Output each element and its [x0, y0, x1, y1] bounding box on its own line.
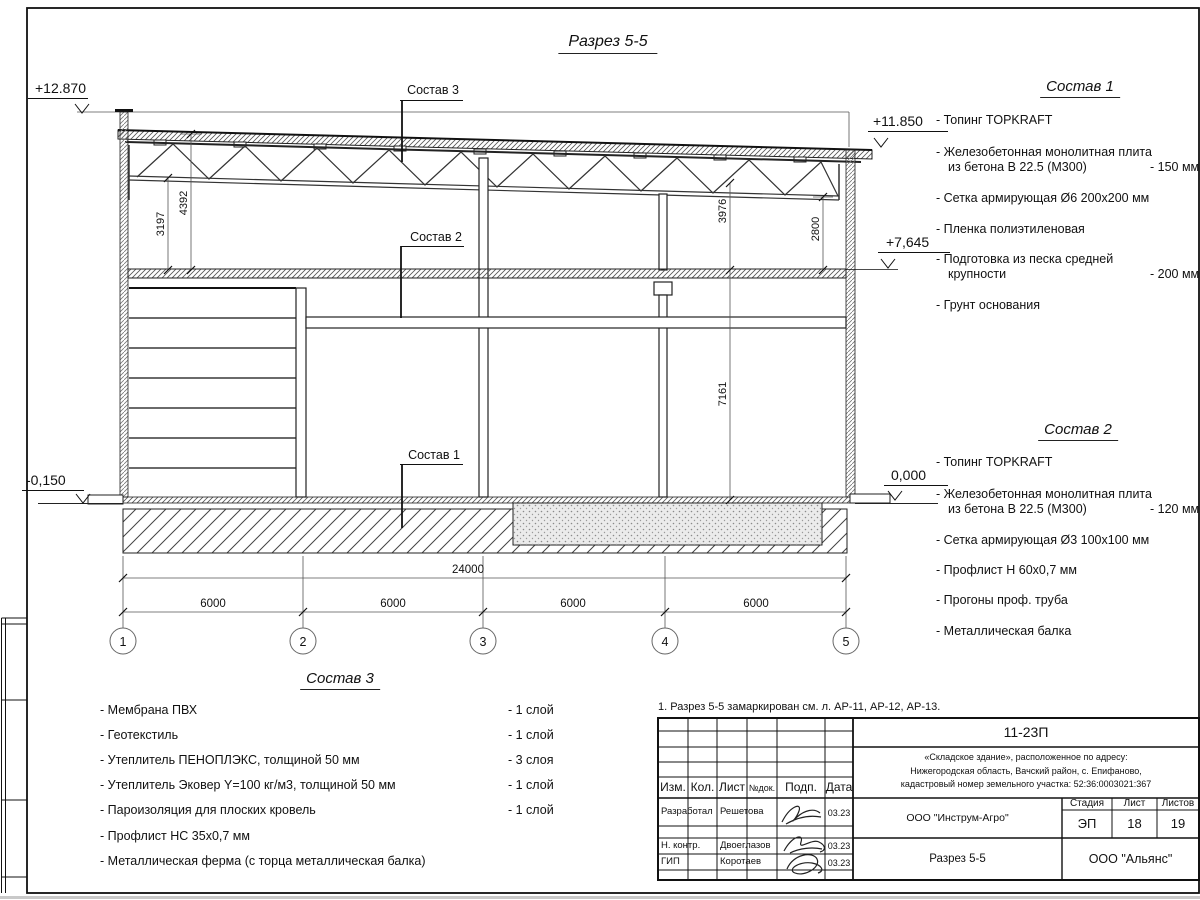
- stamp-col-list: Лист: [717, 780, 747, 794]
- sostav3-item: - Утеплитель Эковер Y=100 кг/м3, толщино…: [100, 778, 396, 793]
- sostav1-item: - Пленка полиэтиленовая: [936, 222, 1085, 237]
- stamp-sheet-value: 18: [1112, 810, 1157, 838]
- callout-sostav1: Состав 1: [408, 448, 460, 462]
- callouts: [400, 100, 464, 528]
- stamp-role-developer: Разработал: [661, 806, 713, 817]
- axis-2: 2: [300, 635, 307, 649]
- elevation-floor2: +7,645: [886, 234, 929, 250]
- axis-5: 5: [843, 635, 850, 649]
- floor-beam: [306, 317, 846, 328]
- stamp-sheet-label: Лист: [1112, 798, 1157, 810]
- sostav1-item: - Железобетонная монолитная плита из бет…: [936, 145, 1152, 175]
- stamp-stage-label: Стадия: [1062, 798, 1112, 810]
- dim-2800: 2800: [810, 217, 822, 241]
- dim-4392: 4392: [178, 191, 190, 215]
- sostav2-item: - Сетка армирующая Ø3 100x100 мм: [936, 533, 1149, 548]
- stamp-date-developer: 03.23: [825, 808, 853, 818]
- column-axis2: [296, 288, 306, 497]
- sostav3-item: - Профлист НС 35x0,7 мм: [100, 829, 250, 844]
- dim-7161: 7161: [717, 382, 729, 406]
- drawing-note: 1. Разрез 5-5 замаркирован см. л. АР-11,…: [658, 701, 940, 713]
- elevation-parapet: +12.870: [35, 80, 86, 96]
- dim-6000-4: 6000: [743, 598, 769, 610]
- sostav2-item: - Профлист Н 60x0,7 мм: [936, 563, 1077, 578]
- stamp-drawing-title: Разрез 5-5: [853, 838, 1062, 880]
- sostav1-heading: Состав 1: [1040, 78, 1120, 98]
- sostav3-item-value: - 1 слой: [508, 803, 554, 817]
- sostav1-item: - Подготовка из песка средней крупности: [936, 252, 1113, 282]
- axis-1: 1: [120, 635, 127, 649]
- sostav2-item: - Топинг TOPKRAFT: [936, 455, 1052, 470]
- stamp-project-address: «Складское здание», расположенное по адр…: [853, 751, 1199, 792]
- dim-3976: 3976: [717, 199, 729, 223]
- stamp-doc-number: 11-23П: [853, 724, 1199, 740]
- axis-4: 4: [662, 635, 669, 649]
- sostav1-item: - Грунт основания: [936, 298, 1040, 313]
- foundation: [123, 503, 847, 553]
- sostav2-item: - Железобетонная монолитная плита из бет…: [936, 487, 1152, 517]
- column-axis4-upper: [659, 194, 667, 270]
- elevation-roof-right: +11.850: [873, 113, 923, 129]
- sostav1-item: - Сетка армирующая Ø6 200x200 мм: [936, 191, 1149, 206]
- callout-sostav2: Состав 2: [410, 230, 462, 244]
- building-section: [38, 111, 938, 554]
- stamp-sheets-label: Листов: [1157, 798, 1199, 810]
- stamp-name-gip: Коротаев: [720, 856, 761, 867]
- sostav3-item-value: - 1 слой: [508, 728, 554, 742]
- stamp-date-ncontrol: 03.23: [825, 841, 853, 851]
- sostav3-item-value: - 3 слоя: [508, 753, 553, 767]
- sostav3-item: - Металлическая ферма (с торца металличе…: [100, 854, 426, 869]
- stamp-date-gip: 03.23: [825, 858, 853, 868]
- sostav3-item-value: - 1 слой: [508, 703, 554, 717]
- dim-24000: 24000: [452, 564, 484, 576]
- signature-reshetova: [782, 806, 821, 824]
- bottom-dimensions: [123, 556, 846, 628]
- stamp-sheets-value: 19: [1157, 810, 1199, 838]
- sostav3-item: - Геотекстиль: [100, 728, 178, 743]
- elevation-ground: -0,150: [26, 472, 66, 488]
- sostav2-item: - Металлическая балка: [936, 624, 1071, 639]
- dim-6000-3: 6000: [560, 598, 586, 610]
- stamp-col-podp: Подп.: [777, 780, 825, 794]
- sostav3-heading: Состав 3: [300, 670, 380, 690]
- gate-panel: [129, 288, 296, 468]
- stamp-col-kol: Кол.: [688, 780, 717, 794]
- sostav1-item: - Топинг TOPKRAFT: [936, 113, 1052, 128]
- stamp-role-ncontrol: Н. контр.: [661, 840, 700, 851]
- sostav2-item: - Прогоны проф. труба: [936, 593, 1068, 608]
- column-axis4-capital: [654, 282, 672, 295]
- dim-6000-1: 6000: [200, 598, 226, 610]
- dim-6000-2: 6000: [380, 598, 406, 610]
- right-wall: [846, 150, 855, 497]
- signatures: [782, 806, 824, 874]
- axis-3: 3: [480, 635, 487, 649]
- sostav1-item-value: - 150 мм: [1150, 160, 1199, 174]
- stamp-col-izm: Изм.: [658, 780, 688, 794]
- stamp-customer: ООО "Альянс": [1062, 838, 1199, 880]
- sostav3-item: - Утеплитель ПЕНОПЛЭКС, толщиной 50 мм: [100, 753, 360, 768]
- sostav1-item-value: - 200 мм: [1150, 267, 1199, 281]
- drawing-sheet: Состав 3 Состав 2 Состав 1 +12.870 +11.8…: [0, 0, 1200, 900]
- mezzanine-slab: [128, 269, 846, 278]
- signature-korotaev: [787, 855, 822, 874]
- sostav3-item: - Пароизоляция для плоских кровель: [100, 803, 316, 818]
- stamp-col-ndok: №док.: [747, 783, 777, 793]
- stamp-name-ncontrol: Двоеглазов: [720, 840, 771, 851]
- side-stamp: [2, 618, 28, 893]
- sostav3-item: - Мембрана ПВХ: [100, 703, 197, 718]
- sostav3-item-value: - 1 слой: [508, 778, 554, 792]
- sostav2-heading: Состав 2: [1038, 421, 1118, 441]
- elevation-zero: 0,000: [891, 467, 926, 483]
- stamp-org: ООО "Инструм-Агро": [853, 798, 1062, 838]
- left-wall: [115, 111, 133, 498]
- callout-sostav3: Состав 3: [407, 83, 459, 97]
- dim-ticks-bottom: [119, 574, 850, 616]
- stamp-stage-value: ЭП: [1062, 810, 1112, 838]
- sostav2-item-value: - 120 мм: [1150, 502, 1199, 516]
- stamp-name-developer: Решетова: [720, 806, 764, 817]
- stamp-col-data: Дата: [825, 780, 853, 794]
- dim-3197: 3197: [155, 212, 167, 236]
- page-title: Разрез 5-5: [558, 33, 657, 54]
- signature-dvoeglazov: [784, 837, 824, 853]
- stamp-role-gip: ГИП: [661, 856, 680, 867]
